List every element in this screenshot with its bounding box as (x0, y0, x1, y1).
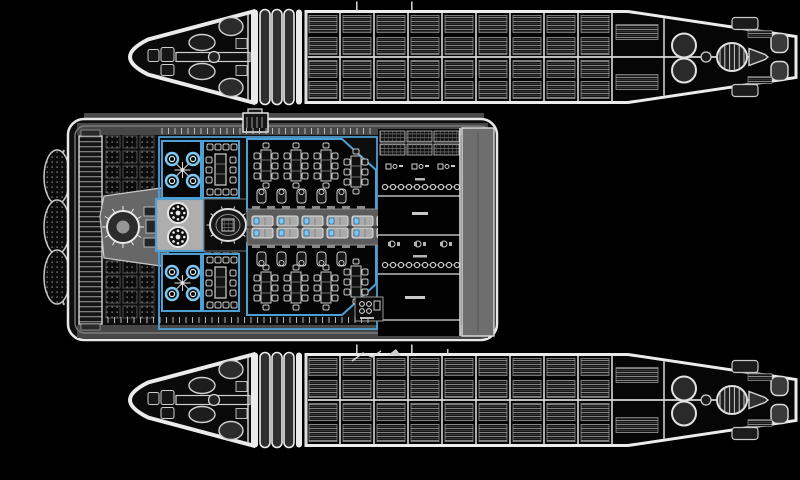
room-label-dash (405, 296, 425, 299)
cargo-cell (106, 136, 120, 148)
chair-icon (231, 189, 237, 195)
chair-icon (254, 153, 260, 159)
machinery-icon (425, 165, 429, 167)
machinery-box (236, 39, 247, 49)
chair-icon (362, 289, 368, 295)
main-deck (44, 109, 497, 340)
cargo-cell (140, 166, 154, 178)
chair-icon (254, 173, 260, 179)
cargo-rack (411, 38, 439, 55)
chair-icon (314, 173, 320, 179)
chair-icon (293, 183, 299, 188)
bottom-outrigger-hull (130, 345, 796, 448)
pilot-seat (161, 48, 174, 62)
chair-icon (344, 159, 350, 165)
pellet-icon (454, 262, 459, 267)
cargo-rack (513, 38, 541, 55)
cargo-rack (581, 359, 609, 376)
cargo-cell (140, 276, 154, 288)
chair-icon (231, 257, 237, 263)
pellet-icon (446, 262, 451, 267)
machinery-icon (423, 242, 426, 246)
chair-icon (206, 280, 212, 286)
chair-icon (284, 153, 290, 159)
chair-icon (344, 169, 350, 175)
cargo-rack (581, 16, 609, 33)
engine-pod (219, 361, 243, 379)
chair-icon (254, 295, 260, 301)
chair-icon (223, 189, 229, 195)
cargo-rack (513, 82, 541, 99)
chair-icon (344, 269, 350, 275)
cargo-rack (445, 38, 473, 55)
reactor-grille (222, 219, 234, 231)
cargo-rack (616, 418, 658, 433)
pellet-icon (422, 262, 427, 267)
cargo-cell (106, 151, 120, 163)
cargo-cell (106, 166, 120, 178)
gear-tooth (172, 207, 175, 210)
pellet-icon (390, 184, 395, 189)
cargo-rack (616, 368, 658, 383)
bellows-ring (260, 10, 270, 105)
cargo-rack (309, 61, 337, 78)
cargo-cell (140, 291, 154, 303)
cargo-rack (616, 25, 658, 40)
gear-hub (176, 235, 181, 240)
pellet-icon (430, 184, 435, 189)
cargo-rack (445, 404, 473, 421)
gear-tooth (177, 229, 180, 232)
bellows-collar (252, 353, 258, 448)
couch-icon (297, 189, 306, 203)
cargo-cell (123, 291, 137, 303)
cargo-rack (479, 359, 507, 376)
cargo-cell (140, 306, 154, 318)
room-label-dash (360, 317, 374, 319)
pilot-seat (161, 408, 174, 419)
mast-icon (411, 2, 413, 11)
cargo-rack (513, 16, 541, 33)
chair-icon (263, 305, 269, 310)
thruster-pod (732, 361, 758, 373)
cargo-rack (343, 16, 371, 33)
gear-tooth (183, 236, 186, 239)
thruster-pod (732, 85, 758, 97)
cargo-rack (479, 38, 507, 55)
stern-vane (748, 31, 772, 38)
cargo-cell (123, 306, 137, 318)
chair-icon (272, 275, 278, 281)
chair-icon (230, 167, 236, 173)
chair-icon (344, 279, 350, 285)
table-icon (215, 267, 226, 298)
chair-icon (230, 290, 236, 296)
cargo-cell (140, 151, 154, 163)
chair-icon (332, 285, 338, 291)
chair-icon (332, 163, 338, 169)
chair-icon (302, 275, 308, 281)
cargo-rack (513, 425, 541, 442)
pellet-icon (454, 184, 459, 189)
debris-mark (388, 349, 401, 356)
room-label-dash (413, 255, 427, 258)
pellet-icon (382, 184, 387, 189)
star-hub (181, 168, 185, 172)
bench-cushion (304, 230, 309, 236)
bench-cushion (354, 230, 359, 236)
pilot-seat (161, 391, 174, 405)
gear-tooth (170, 212, 173, 215)
engine-pod (219, 422, 243, 440)
cargo-cell (106, 306, 120, 318)
thruster-pod (732, 18, 758, 30)
chair-icon (254, 285, 260, 291)
table-icon (215, 154, 226, 185)
cargo-rack (411, 381, 439, 398)
cargo-rack (445, 381, 473, 398)
cargo-band-cap (81, 324, 100, 330)
chair-icon (302, 163, 308, 169)
cargo-rack (547, 425, 575, 442)
hatch-block (434, 144, 459, 155)
chair-icon (284, 295, 290, 301)
equipment-bay (378, 129, 460, 336)
cargo-rack (309, 82, 337, 99)
chair-icon (293, 143, 299, 148)
cargo-rack (479, 16, 507, 33)
bench-cushion (279, 230, 284, 236)
chair-icon (293, 305, 299, 310)
bench-cushion (329, 218, 334, 224)
cargo-rack (445, 61, 473, 78)
cargo-cell (106, 261, 120, 273)
bench-cushion (354, 218, 359, 224)
gear-tooth (181, 207, 184, 210)
cargo-rack (547, 359, 575, 376)
ship-deckplan-svg (0, 0, 800, 480)
cargo-band (79, 136, 102, 324)
chair-icon (314, 275, 320, 281)
cargo-rack (547, 404, 575, 421)
cargo-rack (411, 16, 439, 33)
bow-scallop-dish (44, 250, 70, 304)
pellet-icon (406, 184, 411, 189)
cargo-rack (445, 82, 473, 99)
chair-icon (206, 270, 212, 276)
chair-icon (362, 269, 368, 275)
engine-bell (771, 62, 788, 81)
cargo-rack (547, 61, 575, 78)
chair-icon (314, 295, 320, 301)
room-label-dash (412, 212, 428, 215)
cargo-rack (343, 425, 371, 442)
pellet-icon (398, 184, 403, 189)
chair-icon (362, 179, 368, 185)
cargo-rack (343, 404, 371, 421)
chair-icon (254, 275, 260, 281)
cargo-rack (479, 425, 507, 442)
gear-tooth (172, 240, 175, 243)
chair-icon (207, 257, 213, 263)
cargo-rack (411, 404, 439, 421)
chair-icon (284, 285, 290, 291)
cargo-rack (445, 425, 473, 442)
cargo-rack (343, 381, 371, 398)
bellows-ring (284, 10, 294, 105)
shaft-hub (209, 395, 220, 406)
cargo-rack (411, 82, 439, 99)
table-icon (291, 272, 301, 303)
cargo-rack (309, 425, 337, 442)
acceleration-couch-icon (166, 266, 178, 278)
cargo-cell (123, 166, 137, 178)
chair-icon (215, 257, 221, 263)
chair-icon (344, 289, 350, 295)
cargo-rack (377, 404, 405, 421)
hatch-block (407, 144, 432, 155)
pellet-icon (390, 262, 395, 267)
cargo-rack (377, 61, 405, 78)
machinery-icon (440, 242, 443, 246)
cargo-rack (513, 404, 541, 421)
chair-icon (332, 275, 338, 281)
cargo-rack (309, 381, 337, 398)
chair-icon (207, 189, 213, 195)
command-chair (117, 221, 130, 234)
acceleration-couch-icon (187, 288, 199, 300)
chair-icon (323, 143, 329, 148)
cargo-rack (581, 404, 609, 421)
cargo-cell (106, 276, 120, 288)
engine-pod (219, 79, 243, 97)
stern-vane (748, 77, 772, 84)
cargo-cell (140, 136, 154, 148)
chair-icon (323, 183, 329, 188)
machinery-icon (399, 165, 403, 167)
machinery-pod (189, 64, 215, 80)
cargo-rack (377, 38, 405, 55)
table-icon (291, 150, 301, 181)
pellet-icon (414, 184, 419, 189)
couch-icon (277, 252, 286, 266)
gear-tooth (177, 205, 180, 208)
chair-icon (223, 302, 229, 308)
couch-icon (297, 252, 306, 266)
chair-icon (230, 280, 236, 286)
pilot-seat (148, 50, 159, 62)
cargo-rack (377, 381, 405, 398)
cargo-rack (411, 425, 439, 442)
engine-bell (771, 34, 788, 53)
chair-icon (314, 153, 320, 159)
machinery-icon (451, 165, 455, 167)
chair-icon (332, 295, 338, 301)
chair-icon (207, 302, 213, 308)
chair-icon (302, 173, 308, 179)
chair-icon (254, 163, 260, 169)
cargo-rack (343, 38, 371, 55)
stern-vane (748, 374, 772, 381)
engine-bell (771, 377, 788, 396)
chair-icon (206, 177, 212, 183)
machinery-icon (397, 242, 400, 246)
cargo-rack (411, 359, 439, 376)
bottom-outrigger (130, 345, 796, 448)
pilot-seat (161, 65, 174, 76)
hatch-block (380, 144, 405, 155)
bellows-ring (272, 353, 282, 448)
cargo-rack (377, 16, 405, 33)
chair-icon (230, 157, 236, 163)
chair-icon (272, 153, 278, 159)
chair-icon (353, 149, 359, 154)
gear-tooth (170, 236, 173, 239)
bellows-collar (296, 353, 302, 448)
mast-icon (356, 2, 358, 11)
cargo-rack (513, 61, 541, 78)
cargo-cell (123, 151, 137, 163)
chair-icon (353, 189, 359, 194)
stern-vane (748, 420, 772, 427)
bench-cushion (329, 230, 334, 236)
acceleration-couch-icon (166, 288, 178, 300)
chair-icon (284, 275, 290, 281)
bench-cushion (254, 230, 259, 236)
cargo-rack (581, 38, 609, 55)
chair-icon (323, 305, 329, 310)
cargo-rack (513, 381, 541, 398)
chair-icon (230, 270, 236, 276)
cargo-rack (377, 82, 405, 99)
acceleration-couch-icon (187, 266, 199, 278)
machinery-box (236, 382, 247, 392)
fuel-tank (672, 377, 696, 401)
chair-icon (272, 295, 278, 301)
reactor-capsule (717, 386, 747, 414)
cargo-rack (547, 38, 575, 55)
deckplan-canvas (0, 0, 800, 480)
chair-icon (314, 163, 320, 169)
engine-pod (219, 18, 243, 36)
chair-icon (344, 179, 350, 185)
cargo-cell (123, 276, 137, 288)
chair-icon (230, 177, 236, 183)
pilot-seat (148, 393, 159, 405)
machinery-pod (189, 35, 215, 51)
gear-tooth (172, 216, 175, 219)
hatch-block (434, 131, 459, 142)
fuel-tank (672, 59, 696, 83)
cargo-rack (513, 359, 541, 376)
cargo-rack (479, 82, 507, 99)
cargo-rack (343, 82, 371, 99)
chair-icon (284, 163, 290, 169)
chair-icon (263, 143, 269, 148)
bellows-collar (296, 10, 302, 105)
room-label-dash (415, 178, 425, 181)
chair-icon (302, 285, 308, 291)
machinery-icon (449, 242, 452, 246)
chair-icon (215, 144, 221, 150)
couch-icon (337, 189, 346, 203)
chair-icon (231, 144, 237, 150)
pellet-icon (414, 262, 419, 267)
cargo-rack (581, 381, 609, 398)
gear-hub (176, 211, 181, 216)
machinery-pod (189, 378, 215, 394)
hatch-block (407, 131, 432, 142)
cargo-rack (581, 61, 609, 78)
bench-cushion (304, 218, 309, 224)
cargo-rack (309, 404, 337, 421)
cargo-cell (106, 291, 120, 303)
couch-icon (337, 252, 346, 266)
cargo-rack (377, 425, 405, 442)
cargo-rack (547, 381, 575, 398)
gear-tooth (183, 212, 186, 215)
chair-icon (206, 167, 212, 173)
table-icon (321, 150, 331, 181)
chair-icon (272, 163, 278, 169)
gear-tooth (181, 216, 184, 219)
reactor-capsule (717, 43, 747, 71)
chair-icon (263, 183, 269, 188)
chair-icon (362, 169, 368, 175)
chair-icon (284, 173, 290, 179)
pellet-icon (438, 184, 443, 189)
top-outrigger (130, 2, 796, 105)
machinery-box (236, 409, 247, 419)
table-icon (321, 272, 331, 303)
cargo-rack (411, 61, 439, 78)
machinery-icon (414, 242, 417, 246)
gear-tooth (177, 218, 180, 221)
table-icon (261, 272, 271, 303)
acceleration-couch-icon (187, 175, 199, 187)
bench-cushion (279, 218, 284, 224)
acceleration-couch-icon (166, 175, 178, 187)
gear-tooth (177, 242, 180, 245)
machinery-box (236, 66, 247, 76)
cargo-rack (309, 359, 337, 376)
couch-icon (277, 189, 286, 203)
chair-icon (215, 302, 221, 308)
chair-icon (215, 189, 221, 195)
acceleration-couch-icon (166, 153, 178, 165)
bench-cushion (254, 218, 259, 224)
chair-icon (353, 259, 359, 264)
cargo-cell (123, 136, 137, 148)
cargo-rack (616, 75, 658, 90)
cargo-rack (581, 425, 609, 442)
couch-icon (317, 189, 326, 203)
table-icon (351, 156, 361, 187)
cargo-band-cap (81, 130, 100, 136)
pellet-icon (406, 262, 411, 267)
bellows-ring (272, 10, 282, 105)
chair-icon (272, 285, 278, 291)
acceleration-couch-icon (187, 153, 199, 165)
couch-icon (257, 189, 266, 203)
pellet-icon (422, 184, 427, 189)
coupling (701, 52, 711, 62)
cargo-rack (309, 38, 337, 55)
bellows-ring (284, 353, 294, 448)
cargo-rack (479, 404, 507, 421)
bow-scallop-dish (44, 150, 70, 204)
mast-icon (356, 345, 358, 354)
